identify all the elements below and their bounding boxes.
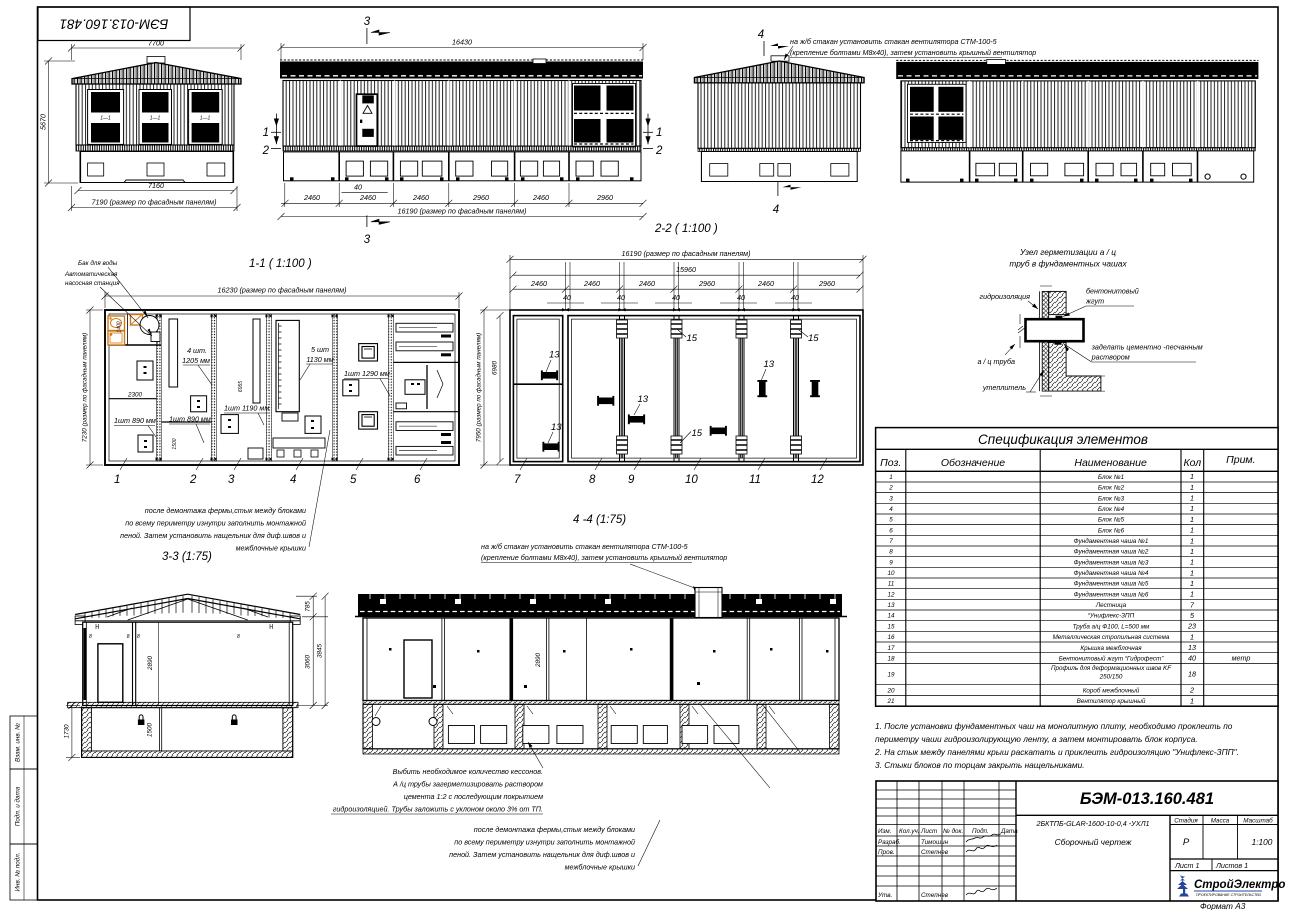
svg-text:3845: 3845 [317,644,324,659]
svg-text:1шт 890 мм: 1шт 890 мм [169,415,211,424]
svg-text:Узел герметизации а / ц: Узел герметизации а / ц [1019,247,1116,257]
svg-text:Фундаментная чаша №4: Фундаментная чаша №4 [1074,569,1149,577]
svg-text:1: 1 [1190,515,1194,524]
svg-text:5: 5 [350,474,357,486]
svg-text:7950 (размер по фасадным панел: 7950 (размер по фасадным панелям) [475,333,483,442]
svg-text:Подп.: Подп. [972,827,989,835]
svg-text:8: 8 [127,634,130,640]
svg-text:Короб межблочный: Короб межблочный [1083,686,1140,694]
svg-text:8: 8 [889,549,893,556]
svg-text:8: 8 [237,634,240,640]
svg-text:пеной. Затем установить нащель: пеной. Затем установить нащельник для ди… [449,850,635,859]
svg-text:2460: 2460 [583,279,600,288]
svg-text:1: 1 [1190,472,1194,481]
svg-text:Вентилятор крышный: Вентилятор крышный [1077,697,1146,705]
svg-text:БЭМ-013.160.481: БЭМ-013.160.481 [60,17,169,32]
svg-text:Степнев: Степнев [921,849,949,856]
svg-text:7: 7 [889,538,893,545]
svg-text:4 -4 (1:75): 4 -4 (1:75) [573,514,626,526]
svg-text:Фундаментная чаша №2: Фундаментная чаша №2 [1074,548,1149,556]
svg-text:15: 15 [887,623,895,630]
svg-text:1205 мм: 1205 мм [182,356,210,365]
svg-text:14: 14 [887,613,895,620]
svg-text:Сборочный чертеж: Сборочный чертеж [1055,837,1133,847]
svg-text:5 шт: 5 шт [311,345,329,354]
svg-text:40: 40 [1188,654,1196,663]
svg-text:1: 1 [114,474,120,486]
svg-text:12: 12 [887,591,895,598]
svg-text:8: 8 [589,474,596,486]
svg-text:785: 785 [305,601,312,612]
svg-text:“Унифлекс-ЗПП: “Унифлекс-ЗПП [1088,613,1135,620]
svg-text:1—1: 1—1 [150,116,161,122]
svg-text:40: 40 [791,293,799,302]
svg-text:1—1: 1—1 [200,116,211,122]
svg-text:17: 17 [887,645,895,652]
svg-text:после демонтажа фермы,стык меж: после демонтажа фермы,стык между блоками [145,506,306,515]
svg-text:2460: 2460 [412,193,429,202]
svg-text:1шт 890 мм: 1шт 890 мм [114,416,156,425]
svg-text:2460: 2460 [303,193,320,202]
svg-text:15: 15 [808,333,819,344]
svg-text:Кол: Кол [1183,457,1201,469]
svg-text:1130 мм: 1130 мм [306,355,333,364]
svg-text:4: 4 [758,29,764,41]
svg-text:гидроизоляция: гидроизоляция [980,292,1031,301]
svg-text:Блок №3: Блок №3 [1098,495,1125,502]
svg-text:3: 3 [889,495,893,502]
svg-text:Пров.: Пров. [878,849,895,856]
svg-text:Взам. инв. №: Взам. инв. № [15,723,22,762]
svg-text:1: 1 [1190,632,1194,641]
svg-text:16430: 16430 [452,38,472,47]
svg-text:периметру чаши гидроизолирующу: периметру чаши гидроизолирующую ленту, а… [875,734,1198,744]
svg-text:1500: 1500 [172,438,178,449]
svg-text:9: 9 [628,474,635,486]
svg-text:утеплитель: утеплитель [982,383,1026,392]
svg-text:на ж/б стакан установить стака: на ж/б стакан установить стакан вентилят… [481,542,689,551]
svg-text:Масса: Масса [1211,818,1230,825]
svg-text:Блок №5: Блок №5 [1098,517,1125,524]
svg-text:2960: 2960 [818,279,835,288]
svg-text:Утв.: Утв. [877,892,892,899]
svg-text:3: 3 [228,474,235,486]
svg-text:(крепление болтами М8х40), зат: (крепление болтами М8х40), затем установ… [790,48,1036,57]
svg-text:250/150: 250/150 [1099,674,1123,681]
svg-text:Кол.уч.: Кол.уч. [899,828,920,835]
svg-text:19: 19 [887,671,895,678]
svg-text:Лестница: Лестница [1095,602,1127,609]
svg-text:СтройЭлектро: СтройЭлектро [1194,879,1285,891]
svg-text:Блок №1: Блок №1 [1098,474,1124,481]
svg-text:ПРОЕКТИРОВАНИЕ СТРОИТЕЛЬСТВО: ПРОЕКТИРОВАНИЕ СТРОИТЕЛЬСТВО [1196,893,1261,897]
svg-text:2460: 2460 [532,193,549,202]
svg-text:Наименование: Наименование [1074,457,1147,469]
svg-text:13: 13 [551,422,562,433]
svg-text:3-3 (1:75): 3-3 (1:75) [162,551,212,563]
svg-text:Степнев: Степнев [921,892,949,899]
svg-text:13: 13 [764,359,775,370]
svg-text:1: 1 [1190,504,1194,513]
svg-text:23: 23 [1187,622,1196,631]
svg-text:16: 16 [887,634,895,641]
svg-text:7190 (размер по фасадным панел: 7190 (размер по фасадным панелям) [92,198,217,207]
svg-text:3060: 3060 [305,655,312,670]
svg-text:1: 1 [1190,558,1194,567]
svg-text:Поз.: Поз. [880,457,901,469]
svg-text:по всему периметру изнутри зап: по всему периметру изнутри заполнить мон… [125,519,306,528]
svg-text:раствором: раствором [1091,353,1130,362]
svg-text:А /ц трубы загерметизировать р: А /ц трубы загерметизировать раствором [392,780,543,789]
svg-text:1: 1 [656,127,662,139]
svg-text:Прим.: Прим. [1226,454,1255,466]
svg-text:2: 2 [655,145,663,157]
svg-text:Металлическая стропильная сист: Металлическая стропильная система [1053,634,1170,641]
svg-text:Р: Р [1183,837,1190,848]
svg-text:Разраб.: Разраб. [878,838,901,846]
svg-text:Стадия: Стадия [1174,817,1198,825]
svg-text:Подп. и дата: Подп. и дата [14,786,22,826]
svg-text:4 шт.: 4 шт. [187,346,207,355]
svg-text:межблочные крышки: межблочные крышки [565,863,635,872]
svg-text:1: 1 [1190,590,1194,599]
svg-text:1: 1 [1190,526,1194,535]
svg-text:пеной. Затем установить нащель: пеной. Затем установить нащельник для ди… [120,531,306,540]
svg-text:Фундаментная чаша №1: Фундаментная чаша №1 [1074,537,1149,545]
svg-text:заделать цементно -песчанным: заделать цементно -песчанным [1091,343,1203,352]
svg-text:1шт 1290 мм: 1шт 1290 мм [344,369,390,378]
svg-text:Блок №6: Блок №6 [1098,527,1125,534]
svg-text:Обозначение: Обозначение [941,457,1005,469]
svg-text:6955: 6955 [238,381,244,392]
svg-text:Труба а/ц Ф100, L=500 мм: Труба а/ц Ф100, L=500 мм [1073,622,1150,630]
svg-text:40: 40 [672,293,680,302]
svg-text:3: 3 [364,16,371,28]
svg-text:гидроизоляцией. Трубы заложить: гидроизоляцией. Трубы заложить с уклоном… [333,805,543,814]
svg-text:Крышка межблочная: Крышка межблочная [1080,644,1142,652]
svg-text:1400: 1400 [117,321,123,332]
svg-text:1—1: 1—1 [100,116,111,122]
svg-text:7160: 7160 [148,181,164,190]
svg-text:4: 4 [889,506,893,513]
svg-text:Тимошин: Тимошин [921,839,949,846]
svg-text:Профиль для деформационных шво: Профиль для деформационных швов KF [1051,664,1172,672]
svg-text:бентонитовый: бентонитовый [1086,287,1139,296]
svg-text:2. На стык между панелями крыш: 2. На стык между панелями крыш раскатать… [874,747,1239,757]
svg-text:7: 7 [514,474,521,486]
svg-text:2890: 2890 [535,653,542,669]
svg-text:9: 9 [889,559,893,566]
svg-text:1500: 1500 [147,723,154,738]
svg-text:8: 8 [89,634,92,640]
svg-text:1: 1 [889,474,893,481]
svg-text:40: 40 [354,183,362,192]
svg-text:БЭМ-013.160.481: БЭМ-013.160.481 [1080,790,1214,808]
svg-text:2-2 ( 1:100 ): 2-2 ( 1:100 ) [654,223,718,235]
svg-text:11: 11 [888,581,895,588]
svg-text:2: 2 [189,474,197,486]
svg-text:2460: 2460 [638,279,655,288]
svg-text:жгут: жгут [1085,297,1104,306]
svg-text:2: 2 [1189,686,1194,695]
svg-text:40: 40 [617,293,625,302]
svg-text:1730: 1730 [64,724,71,739]
svg-text:Автоматическая: Автоматическая [64,271,118,278]
svg-text:13: 13 [1188,643,1196,652]
svg-text:5670: 5670 [39,114,48,130]
svg-text:12: 12 [811,474,824,486]
svg-text:15: 15 [692,428,703,439]
svg-text:21: 21 [886,698,894,705]
svg-text:6: 6 [889,527,893,534]
svg-text:после демонтажа фермы,стык меж: после демонтажа фермы,стык между блоками [474,825,635,834]
svg-text:2460: 2460 [757,279,774,288]
svg-text:межблочные крышки: межблочные крышки [236,544,306,553]
svg-text:Фундаментная чаша №3: Фундаментная чаша №3 [1074,558,1149,566]
svg-text:2БКТПБ-GLAR-1600-10-0,4 -УХЛ1: 2БКТПБ-GLAR-1600-10-0,4 -УХЛ1 [1035,819,1149,828]
svg-text:2460: 2460 [530,279,547,288]
svg-text:16190 (размер по фасадным пане: 16190 (размер по фасадным панелям) [622,249,751,258]
svg-text:1: 1 [1190,696,1194,705]
svg-text:7230 (размер по фасадным панел: 7230 (размер по фасадным панелям) [81,333,89,442]
svg-text:(крепление болтами М8х40), зат: (крепление болтами М8х40), затем установ… [481,553,727,562]
svg-text:40: 40 [563,293,571,302]
svg-text:Дата: Дата [1000,828,1018,835]
svg-text:2960: 2960 [698,279,715,288]
svg-text:2960: 2960 [472,193,489,202]
svg-text:1шт 1190 мм: 1шт 1190 мм [224,404,269,413]
svg-text:13: 13 [887,602,895,609]
svg-text:1: 1 [1190,536,1194,545]
svg-text:Выбить необходимое количество: Выбить необходимое количество кессонов. [393,767,543,776]
svg-text:40: 40 [737,293,745,302]
svg-text:18: 18 [1188,670,1196,679]
svg-text:1: 1 [1190,579,1194,588]
svg-text:Лист: Лист [920,828,937,835]
svg-text:3. Стыки блоков по торцам закр: 3. Стыки блоков по торцам закрыть нащель… [875,760,1085,770]
svg-text:1: 1 [263,127,269,139]
svg-text:Фундаментная чаша №5: Фундаментная чаша №5 [1074,580,1149,588]
svg-text:1. После установки фундаментны: 1. После установки фундаментных чаш на м… [875,721,1233,731]
svg-text:№ док.: № док. [943,827,963,835]
svg-text:4: 4 [290,474,296,486]
svg-text:насосная станция: насосная станция [65,280,120,287]
svg-text:2: 2 [262,145,270,157]
svg-text:1:100: 1:100 [1252,837,1273,847]
svg-text:13: 13 [549,350,560,361]
svg-text:Лист 1: Лист 1 [1174,861,1200,870]
svg-text:Листов 1: Листов 1 [1215,861,1248,870]
svg-text:на ж/б стакан установить стака: на ж/б стакан установить стакан вентилят… [790,37,998,46]
svg-text:16190 (размер по фасадным пане: 16190 (размер по фасадным панелям) [398,207,527,216]
svg-text:6: 6 [414,474,421,486]
svg-text:Блок №4: Блок №4 [1098,506,1125,513]
svg-text:Формат А3: Формат А3 [1200,901,1246,910]
svg-text:Масштаб: Масштаб [1243,817,1273,825]
svg-text:7700: 7700 [148,39,164,48]
svg-text:2: 2 [888,485,893,492]
svg-text:3: 3 [364,234,371,246]
svg-text:6980: 6980 [492,361,499,376]
svg-text:Изм.: Изм. [878,828,891,835]
svg-text:1: 1 [1190,568,1194,577]
svg-text:Бак для воды: Бак для воды [78,259,118,267]
svg-text:8: 8 [137,634,140,640]
svg-text:2960: 2960 [596,193,613,202]
svg-text:2460: 2460 [359,193,376,202]
svg-text:1: 1 [1190,494,1194,503]
svg-text:18: 18 [887,655,895,662]
svg-text:Бентонитовый жгут “Гидрофест”: Бентонитовый жгут “Гидрофест” [1059,654,1165,662]
svg-text:Блок №2: Блок №2 [1098,485,1125,492]
svg-text:Инв. № подл.: Инв. № подл. [14,852,22,891]
svg-text:Фундаментная чаша №6: Фундаментная чаша №6 [1074,590,1149,598]
svg-text:1: 1 [1190,547,1194,556]
svg-text:13: 13 [638,394,649,405]
svg-text:15960: 15960 [676,265,696,274]
svg-text:5: 5 [889,517,893,524]
svg-text:2300: 2300 [127,392,143,399]
svg-text:15: 15 [687,333,698,344]
svg-text:Спецификация элементов: Спецификация элементов [978,432,1148,447]
svg-text:цемента 1:2 с последующим по: цемента 1:2 с последующим покрытием [404,792,543,801]
svg-text:10: 10 [685,474,698,486]
svg-text:1: 1 [1190,483,1194,492]
svg-text:16230 (размер по фасадным пане: 16230 (размер по фасадным панелям) [218,286,347,295]
svg-text:а / ц труба: а / ц труба [977,357,1015,366]
svg-text:20: 20 [886,687,895,694]
svg-text:метр: метр [1232,654,1251,663]
svg-text:по всему периметру изнутри зап: по всему периметру изнутри заполнить мон… [454,838,635,847]
svg-text:10: 10 [887,570,895,577]
svg-text:2890: 2890 [147,656,154,672]
svg-text:1-1 ( 1:100 ): 1-1 ( 1:100 ) [249,258,312,270]
svg-text:11: 11 [749,474,761,486]
svg-text:труб в фундаментных чашах: труб в фундаментных чашах [1009,259,1127,269]
svg-text:4: 4 [773,204,779,216]
